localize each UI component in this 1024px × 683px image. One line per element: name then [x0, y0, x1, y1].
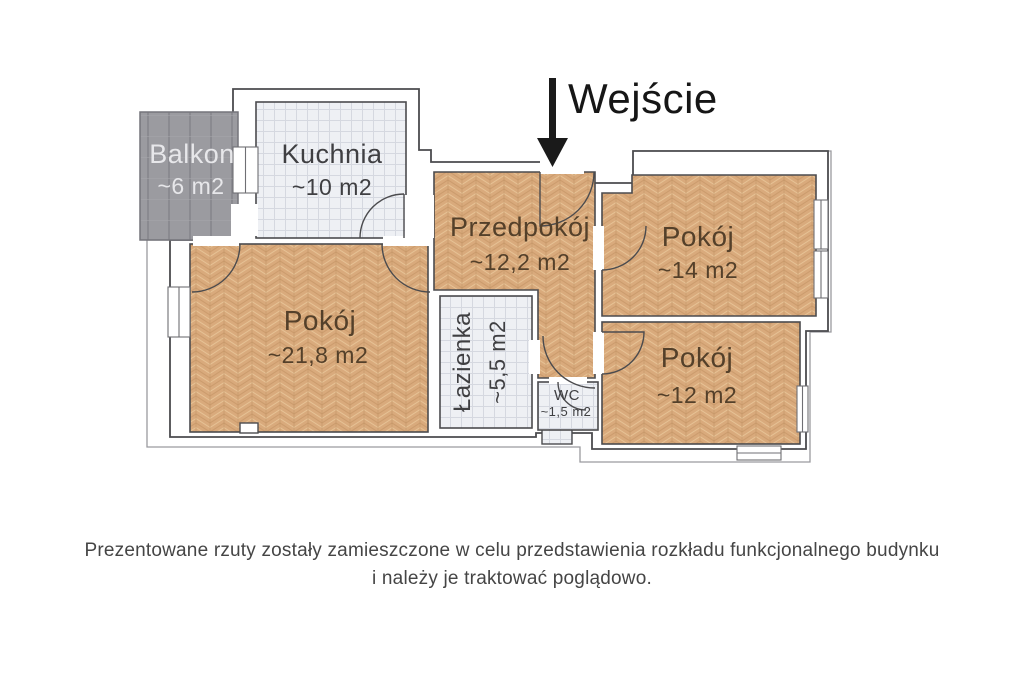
entrance-arrow: [537, 78, 568, 167]
door-opening: [529, 340, 540, 374]
door-opening: [593, 332, 604, 374]
window: [814, 251, 828, 298]
door-opening: [540, 160, 584, 174]
door-opening: [231, 204, 258, 236]
window: [233, 147, 258, 193]
disclaimer-line-2: i należy je traktować poglądowo.: [0, 565, 1024, 593]
entrance-arrow-shaft: [549, 78, 556, 139]
floor-plan-page: Balkon ~6 m2 Kuchnia ~10 m2 Przedpokój ~…: [0, 0, 1024, 683]
label-lazienka-area: ~5,5 m2: [485, 320, 510, 404]
label-przedpokoj-area: ~12,2 m2: [470, 249, 571, 275]
door-opening: [193, 236, 239, 246]
label-pokoj-12-area: ~12 m2: [657, 382, 737, 408]
window: [168, 287, 190, 337]
label-wc-name: WC: [554, 387, 580, 404]
label-pokoj-21-name: Pokój: [284, 305, 357, 336]
entrance-label: Wejście: [568, 75, 718, 122]
door-opening: [405, 195, 434, 238]
label-przedpokoj-name: Przedpokój: [450, 212, 590, 242]
window: [737, 446, 781, 460]
room-kuchnia-floor: [256, 102, 406, 238]
label-pokoj-12-name: Pokój: [661, 342, 734, 373]
label-balkon-name: Balkon: [149, 139, 235, 169]
label-kuchnia-area: ~10 m2: [292, 174, 372, 200]
label-pokoj-14-area: ~14 m2: [658, 257, 738, 283]
label-pokoj-21-area: ~21,8 m2: [268, 342, 369, 368]
disclaimer: Prezentowane rzuty zostały zamieszczone …: [0, 537, 1024, 593]
door-opening: [593, 226, 604, 270]
label-wc-area: ~1,5 m2: [541, 404, 592, 419]
label-balkon-area: ~6 m2: [157, 173, 224, 199]
label-lazienka-name: Łazienka: [449, 312, 476, 412]
disclaimer-line-1: Prezentowane rzuty zostały zamieszczone …: [0, 537, 1024, 565]
room-pokoj-21-floor: [190, 244, 428, 432]
label-kuchnia-name: Kuchnia: [281, 139, 383, 169]
window: [797, 386, 808, 432]
label-pokoj-14-name: Pokój: [662, 221, 735, 252]
door-opening: [383, 236, 429, 246]
floor-plan: Balkon ~6 m2 Kuchnia ~10 m2 Przedpokój ~…: [0, 0, 1024, 520]
window: [814, 200, 828, 249]
pillar-notch: [240, 423, 258, 433]
